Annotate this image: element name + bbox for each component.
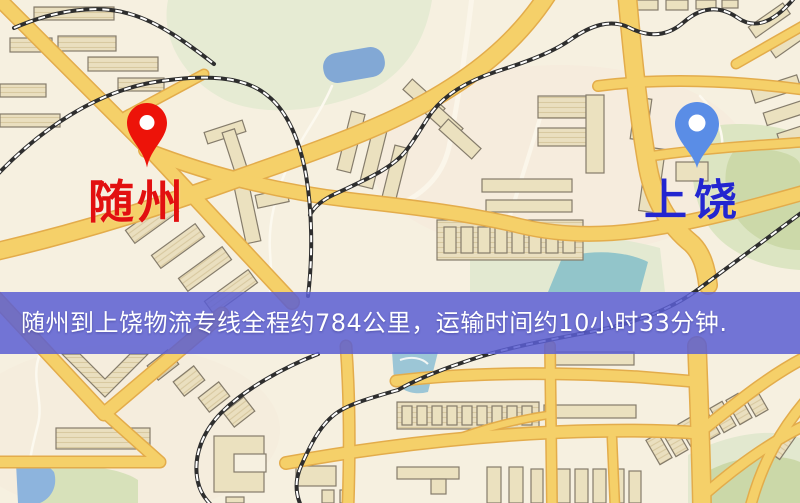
route-info-banner: 随州到上饶物流专线全程约784公里，运输时间约10小时33分钟.: [0, 292, 800, 354]
origin-label: 随州: [88, 179, 186, 225]
map-canvas: [0, 0, 800, 503]
destination-label: 上饶: [644, 180, 744, 223]
map-image: 随州 上饶 随州到上饶物流专线全程约784公里，运输时间约10小时33分钟.: [0, 0, 800, 503]
route-info-text: 随州到上饶物流专线全程约784公里，运输时间约10小时33分钟.: [21, 309, 728, 337]
